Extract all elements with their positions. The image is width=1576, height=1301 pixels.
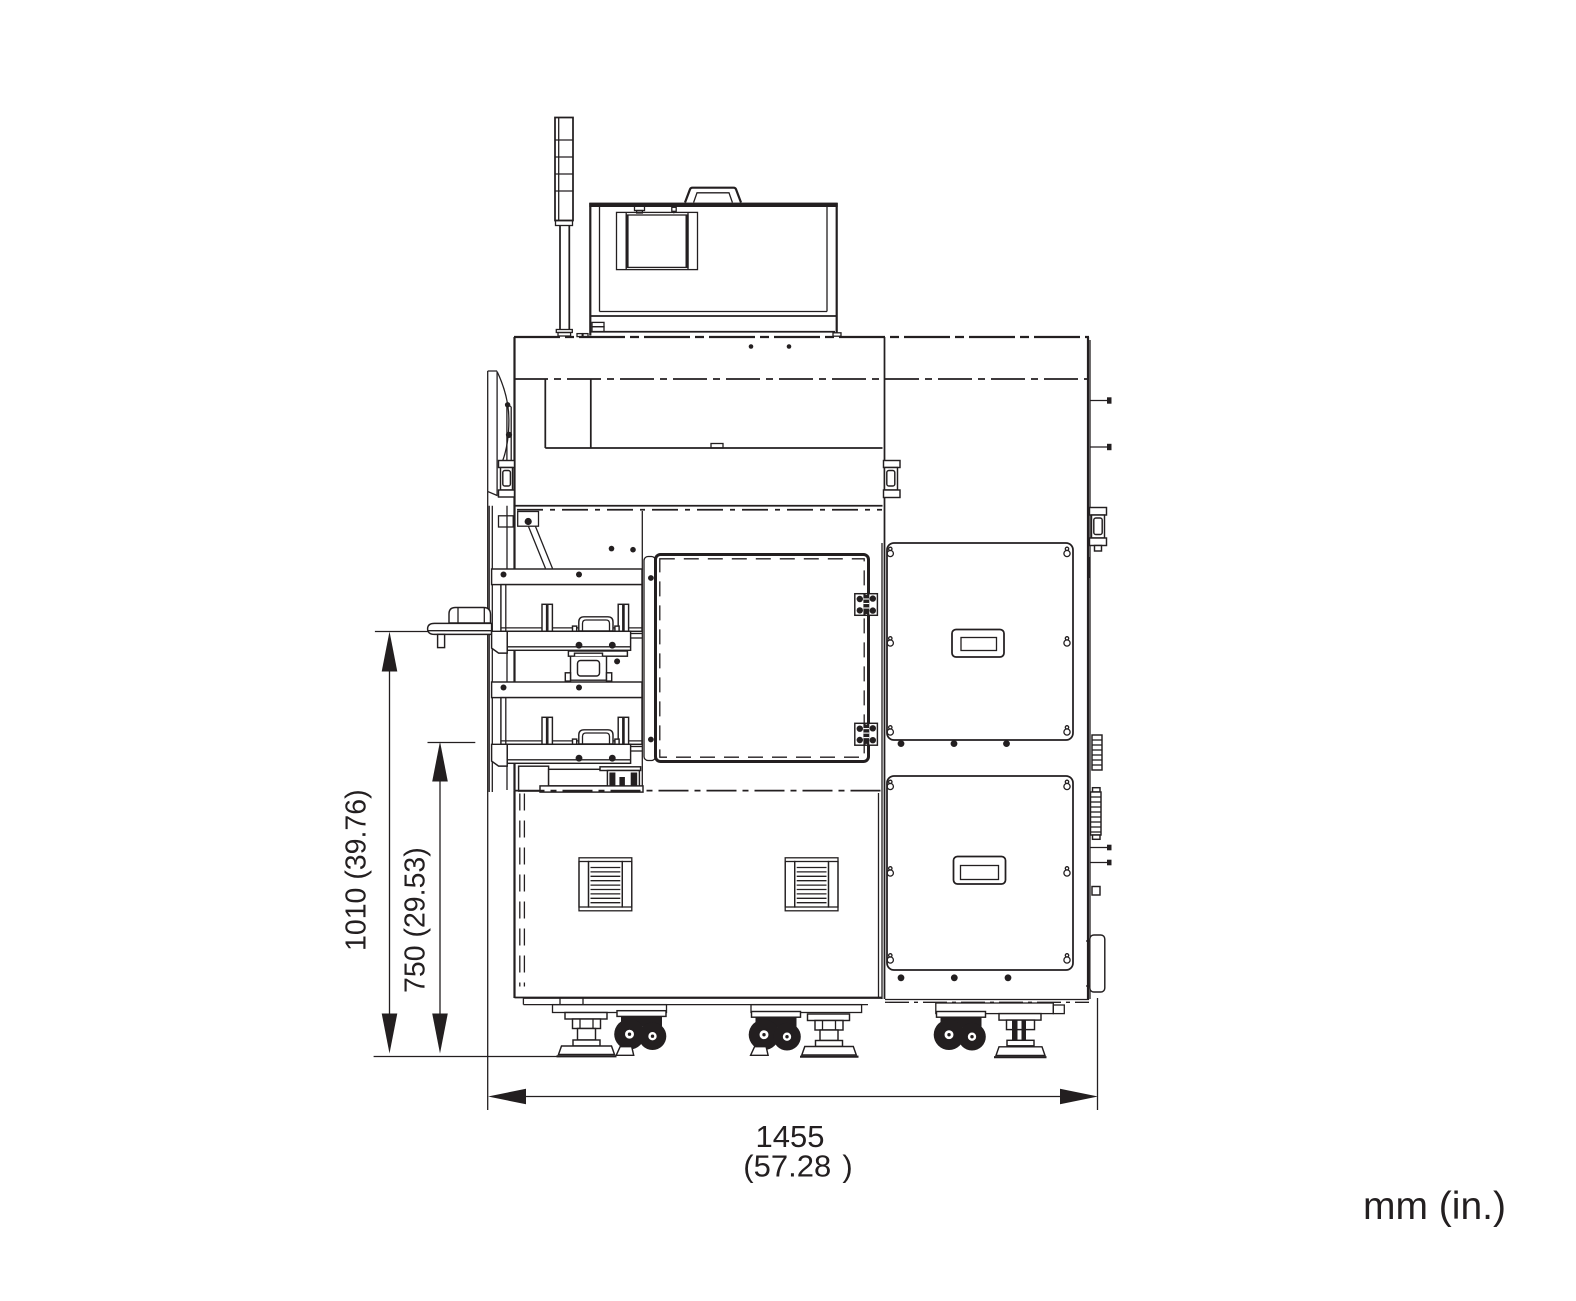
svg-text:750 (29.53): 750 (29.53) [400, 847, 432, 993]
svg-text:mm (in.): mm (in.) [1363, 1185, 1506, 1228]
svg-text:(57.28 ): (57.28 ) [743, 1149, 852, 1184]
svg-text:1010 (39.76): 1010 (39.76) [341, 789, 373, 951]
